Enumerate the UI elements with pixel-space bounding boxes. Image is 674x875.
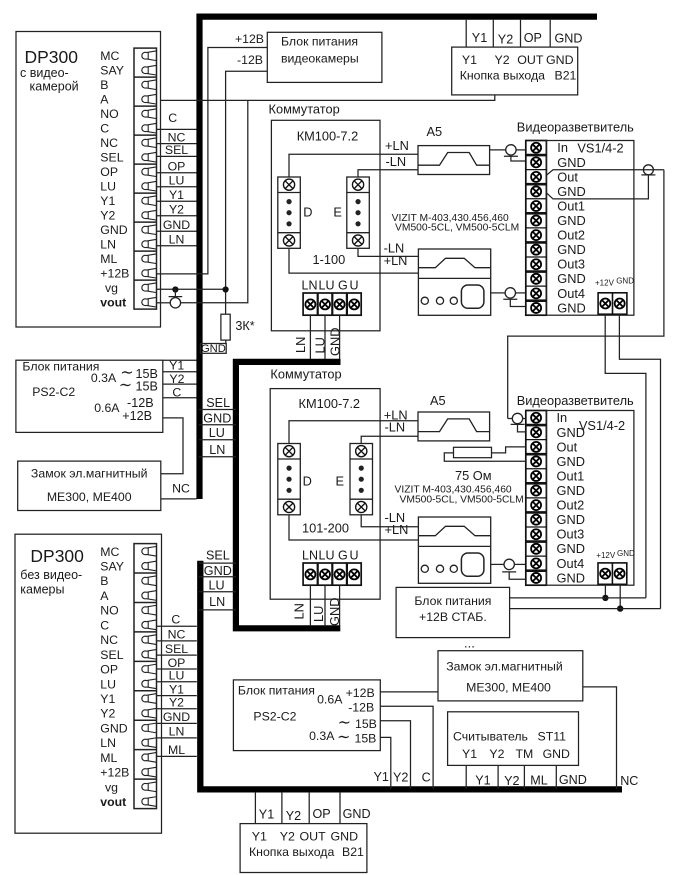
svg-text:LU: LU — [209, 426, 225, 440]
svg-text:VM500-5CL, VM500-5CLM: VM500-5CL, VM500-5CLM — [395, 223, 519, 234]
svg-text:SEL: SEL — [165, 143, 188, 157]
svg-text:Out2: Out2 — [557, 228, 585, 243]
svg-text:MC: MC — [100, 49, 119, 63]
svg-text:OUT: OUT — [517, 53, 544, 67]
svg-text:15В: 15В — [355, 717, 377, 731]
svg-text:МЕ300, МЕ400: МЕ300, МЕ400 — [466, 681, 551, 695]
svg-text:+LN: +LN — [385, 522, 409, 537]
svg-text:камерой: камерой — [30, 80, 79, 94]
svg-text:Блок питания: Блок питания — [22, 360, 99, 374]
svg-text:DP300: DP300 — [25, 47, 79, 67]
svg-text:+12V: +12V — [596, 551, 616, 560]
svg-text:VS1/4-2: VS1/4-2 — [577, 141, 623, 156]
svg-text:15В: 15В — [136, 379, 158, 393]
svg-text:Кнопка выхода: Кнопка выхода — [249, 845, 334, 859]
svg-text:+12В: +12В — [100, 267, 129, 281]
svg-text:Блок питания: Блок питания — [414, 594, 491, 608]
svg-text:1-100: 1-100 — [313, 252, 346, 267]
svg-text:VM500-5CL, VM500-5CLM: VM500-5CL, VM500-5CLM — [400, 494, 524, 505]
svg-text:LU: LU — [313, 337, 328, 353]
svg-text:GND: GND — [327, 598, 342, 626]
svg-text:-12В: -12В — [348, 701, 374, 715]
svg-text:+12В: +12В — [346, 686, 375, 700]
svg-text:Блок питания: Блок питания — [238, 684, 315, 698]
svg-text:+12В: +12В — [235, 32, 264, 46]
svg-text:Out: Out — [557, 169, 578, 184]
svg-text:SAY: SAY — [100, 560, 124, 574]
svg-text:Y1: Y1 — [475, 773, 490, 787]
svg-text:ML: ML — [168, 743, 185, 757]
svg-text:OP: OP — [312, 807, 330, 821]
svg-text:В21: В21 — [342, 845, 364, 859]
svg-text:VS1/4-2: VS1/4-2 — [579, 418, 625, 433]
svg-text:In: In — [557, 410, 568, 425]
svg-text:OP: OP — [168, 160, 186, 174]
svg-text:OP: OP — [100, 663, 118, 677]
svg-text:LN: LN — [100, 736, 116, 750]
svg-text:vout: vout — [100, 795, 126, 809]
svg-text:LU: LU — [100, 180, 116, 194]
svg-text:Y1: Y1 — [252, 830, 267, 844]
svg-text:Y1: Y1 — [472, 31, 487, 45]
svg-text:Y2: Y2 — [169, 203, 184, 217]
svg-text:0.3А: 0.3А — [309, 729, 335, 743]
svg-text:Out4: Out4 — [557, 556, 585, 571]
svg-text:NC: NC — [100, 136, 118, 150]
svg-text:E: E — [336, 474, 345, 489]
svg-text:U: U — [350, 279, 359, 293]
svg-text:GND: GND — [163, 710, 190, 724]
svg-text:Видеоразветвитель: Видеоразветвитель — [517, 393, 634, 408]
svg-text:LN: LN — [169, 233, 185, 247]
svg-text:ТМ: ТМ — [516, 747, 534, 761]
svg-text:D: D — [303, 474, 312, 489]
svg-text:Y1: Y1 — [169, 682, 184, 696]
svg-text:В21: В21 — [555, 68, 577, 82]
svg-text:B: B — [100, 574, 108, 588]
svg-text:ML: ML — [100, 751, 117, 765]
svg-text:Замок эл.магнитный: Замок эл.магнитный — [446, 659, 563, 673]
svg-text:LU: LU — [209, 579, 225, 593]
svg-text:-12В: -12В — [127, 396, 154, 410]
svg-text:Out1: Out1 — [557, 198, 585, 213]
svg-text:NO: NO — [100, 604, 118, 618]
svg-text:GND: GND — [328, 328, 343, 356]
svg-text:∼: ∼ — [119, 377, 132, 394]
svg-text:МЕ300, МЕ400: МЕ300, МЕ400 — [47, 490, 132, 504]
svg-text:Y1: Y1 — [100, 194, 115, 208]
svg-text:Out1: Out1 — [557, 468, 585, 483]
svg-text:B: B — [100, 78, 108, 92]
svg-text:Y2: Y2 — [169, 372, 184, 386]
svg-text:GND: GND — [163, 218, 190, 232]
svg-text:GND: GND — [543, 747, 570, 761]
svg-text:NC: NC — [168, 628, 186, 642]
svg-text:КМ100-7.2: КМ100-7.2 — [299, 396, 361, 411]
svg-text:LU: LU — [311, 606, 326, 622]
svg-text:видеокамеры: видеокамеры — [281, 52, 359, 66]
svg-text:LN: LN — [100, 238, 116, 252]
svg-text:OP: OP — [524, 31, 542, 45]
svg-text:Y2: Y2 — [498, 33, 513, 47]
svg-text:PS2-C2: PS2-C2 — [253, 710, 296, 724]
svg-text:0.6А: 0.6А — [94, 401, 120, 415]
svg-text:Y1: Y1 — [100, 692, 115, 706]
svg-text:U: U — [350, 549, 359, 563]
svg-text:+12В СТАБ.: +12В СТАБ. — [419, 610, 487, 624]
svg-text:+LN: +LN — [384, 253, 408, 268]
svg-text:OP: OP — [100, 165, 118, 179]
svg-text:GND: GND — [557, 483, 585, 498]
svg-text:КМ100-7.2: КМ100-7.2 — [297, 128, 359, 143]
svg-text:GND: GND — [331, 830, 359, 844]
svg-text:∼: ∼ — [337, 729, 350, 746]
svg-text:Коммутатор: Коммутатор — [270, 366, 341, 381]
svg-text:In: In — [557, 140, 568, 155]
svg-text:GND: GND — [557, 570, 585, 585]
svg-text:GND: GND — [557, 454, 585, 469]
svg-text:SEL: SEL — [206, 396, 230, 410]
svg-text:с видео-: с видео- — [20, 66, 69, 80]
svg-text:GND: GND — [557, 512, 585, 527]
svg-text:LN: LN — [169, 725, 185, 739]
svg-text:камеры: камеры — [20, 583, 64, 597]
svg-text:Y1: Y1 — [373, 770, 388, 784]
svg-text:G: G — [338, 279, 348, 293]
svg-text:NC: NC — [620, 774, 638, 788]
svg-text:NC: NC — [100, 633, 118, 647]
svg-text:GND: GND — [555, 31, 583, 45]
svg-text:GND: GND — [100, 721, 127, 735]
svg-text:Y1: Y1 — [462, 53, 477, 67]
svg-text:vg: vg — [105, 281, 118, 295]
svg-text:E: E — [333, 205, 342, 220]
svg-text:OUT: OUT — [300, 830, 327, 844]
svg-text:LU: LU — [319, 279, 335, 293]
svg-text:GND: GND — [557, 271, 585, 286]
svg-text:NC: NC — [172, 482, 190, 496]
svg-text:A: A — [100, 589, 109, 603]
svg-text:C: C — [422, 771, 431, 785]
svg-text:G: G — [338, 549, 348, 563]
svg-text:LU: LU — [100, 677, 116, 691]
svg-text:MC: MC — [100, 545, 119, 559]
svg-text:Y2: Y2 — [489, 747, 504, 761]
svg-text:А5: А5 — [427, 124, 443, 139]
svg-text:GND: GND — [203, 412, 231, 426]
svg-text:SEL: SEL — [100, 151, 123, 165]
svg-text:GND: GND — [557, 155, 585, 170]
svg-text:GND: GND — [559, 773, 587, 787]
svg-text:LN: LN — [209, 595, 225, 609]
svg-text:Y1: Y1 — [169, 188, 184, 202]
svg-text:ML: ML — [100, 252, 117, 266]
svg-text:Y2: Y2 — [280, 830, 295, 844]
svg-text:LN: LN — [293, 337, 308, 353]
svg-text:...: ... — [464, 636, 475, 651]
svg-text:LN: LN — [209, 443, 225, 457]
svg-text:Y2: Y2 — [100, 707, 115, 721]
svg-text:ST11: ST11 — [538, 729, 567, 743]
svg-text:0.3А: 0.3А — [91, 371, 117, 385]
svg-text:GND: GND — [616, 276, 634, 285]
svg-text:Out: Out — [557, 439, 578, 454]
svg-text:GND: GND — [343, 807, 371, 821]
svg-text:Y2: Y2 — [393, 771, 408, 785]
svg-text:Y1: Y1 — [462, 747, 477, 761]
svg-text:GND: GND — [557, 541, 585, 556]
svg-text:+12V: +12V — [595, 278, 615, 287]
svg-text:GND: GND — [204, 564, 232, 578]
svg-text:-12В: -12В — [237, 53, 263, 67]
svg-text:SEL: SEL — [100, 648, 123, 662]
svg-text:-LN: -LN — [386, 154, 407, 169]
svg-text:3К*: 3К* — [235, 319, 254, 333]
svg-text:+12В: +12В — [122, 409, 152, 423]
svg-text:Замок эл.магнитный: Замок эл.магнитный — [31, 467, 148, 481]
svg-text:C: C — [100, 122, 109, 136]
svg-text:PS2-C2: PS2-C2 — [32, 385, 75, 399]
svg-text:15В: 15В — [355, 731, 377, 745]
svg-text:Считыватель: Считыватель — [453, 729, 528, 743]
svg-text:NO: NO — [100, 107, 118, 121]
svg-text:Y2: Y2 — [286, 809, 301, 823]
svg-text:GND: GND — [617, 549, 635, 558]
svg-text:LN: LN — [292, 603, 307, 619]
svg-text:A: A — [100, 93, 109, 107]
svg-text:SAY: SAY — [100, 64, 124, 78]
svg-text:GND: GND — [557, 242, 585, 257]
svg-text:DP300: DP300 — [30, 546, 84, 566]
svg-text:Y2: Y2 — [169, 696, 184, 710]
svg-text:Y2: Y2 — [100, 209, 115, 223]
svg-text:C: C — [168, 111, 177, 125]
svg-text:vout: vout — [100, 296, 126, 310]
svg-text:Y2: Y2 — [504, 774, 519, 788]
svg-text:GND: GND — [557, 184, 585, 199]
svg-text:Кнопка выхода: Кнопка выхода — [460, 68, 545, 82]
svg-text:LU: LU — [319, 549, 335, 563]
svg-text:GND: GND — [100, 223, 127, 237]
svg-text:Out4: Out4 — [557, 286, 585, 301]
svg-text:+LN: +LN — [385, 138, 409, 153]
svg-text:LU: LU — [169, 174, 185, 188]
svg-text:GND: GND — [557, 300, 585, 315]
svg-text:Out3: Out3 — [557, 257, 585, 272]
svg-text:Видеоразветвитель: Видеоразветвитель — [517, 120, 634, 135]
svg-text:Y1: Y1 — [259, 808, 274, 822]
svg-text:GND: GND — [201, 343, 226, 355]
svg-text:LU: LU — [169, 669, 185, 683]
svg-text:SEL: SEL — [206, 548, 230, 562]
svg-text:101-200: 101-200 — [302, 520, 349, 535]
svg-text:Y1: Y1 — [169, 358, 184, 372]
svg-text:LN: LN — [302, 279, 318, 293]
svg-text:C: C — [171, 612, 180, 626]
svg-text:GND: GND — [546, 53, 574, 67]
svg-text:А5: А5 — [430, 393, 446, 408]
svg-text:Out2: Out2 — [557, 498, 585, 513]
svg-text:ML: ML — [530, 773, 548, 787]
svg-text:0.6А: 0.6А — [317, 692, 343, 706]
svg-text:D: D — [303, 205, 312, 220]
svg-text:+12В: +12В — [100, 766, 129, 780]
svg-text:GND: GND — [557, 213, 585, 228]
svg-text:LN: LN — [302, 549, 318, 563]
svg-text:без видео-: без видео- — [20, 568, 82, 582]
svg-text:75 Ом: 75 Ом — [455, 468, 492, 483]
svg-text:SEL: SEL — [165, 642, 188, 656]
svg-text:Блок питания: Блок питания — [281, 34, 358, 48]
svg-text:-LN: -LN — [385, 419, 406, 434]
svg-text:Коммутатор: Коммутатор — [269, 102, 340, 117]
svg-text:C: C — [172, 386, 181, 400]
svg-text:Y2: Y2 — [495, 53, 510, 67]
svg-text:C: C — [100, 618, 109, 632]
svg-text:Out3: Out3 — [557, 527, 585, 542]
svg-text:vg: vg — [105, 780, 118, 794]
